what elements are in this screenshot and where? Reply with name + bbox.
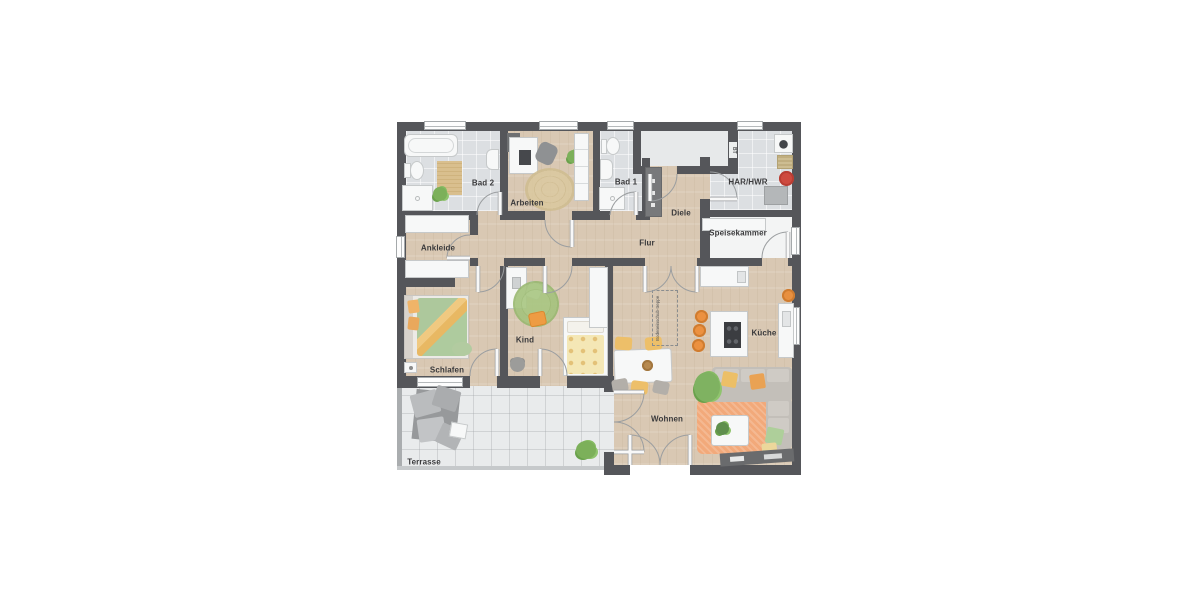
- plant-icon: [716, 422, 729, 435]
- room-label-har-hwr: HAR/HWR: [728, 178, 767, 187]
- entrance-porch-floor: [641, 131, 728, 166]
- counter-sink: [737, 271, 746, 283]
- room-label-ankleide: Ankleide: [421, 244, 455, 253]
- kitchen-counter: [700, 266, 749, 287]
- wall: [504, 258, 545, 266]
- tv-device: [764, 453, 782, 459]
- bed-blanket: [567, 335, 604, 374]
- room-label-kueche: Küche: [752, 329, 777, 338]
- washing-machine: [774, 134, 793, 153]
- wardrobe: [405, 260, 469, 278]
- coat-rack: [645, 167, 662, 217]
- shower: [599, 187, 625, 210]
- bathtub-basin: [408, 138, 454, 153]
- table-centerpiece: [642, 360, 653, 371]
- room-label-diele: Diele: [671, 209, 691, 218]
- small-rug: [452, 342, 472, 356]
- bathtub: [404, 134, 458, 157]
- sink: [486, 149, 499, 170]
- robot-vacuum: [779, 171, 794, 186]
- desk: [509, 137, 538, 174]
- wall: [572, 211, 610, 220]
- shower-drain: [415, 196, 420, 201]
- room-label-bad2: Bad 2: [472, 179, 494, 188]
- window: [424, 121, 466, 130]
- bt-annotation: BT: [729, 142, 737, 158]
- terrace-bottom-edge: [397, 466, 614, 470]
- floor-plan: Bodeneinschub-treppe BT: [0, 0, 1200, 600]
- window: [396, 236, 405, 258]
- wall: [470, 258, 478, 266]
- wall: [633, 131, 641, 166]
- wall: [500, 211, 545, 220]
- laptop: [519, 150, 531, 165]
- serving-tray: [449, 422, 468, 440]
- wall: [572, 258, 645, 266]
- fruit-bowl: [782, 289, 795, 302]
- room-label-flur: Flur: [639, 239, 655, 248]
- pillow: [407, 299, 420, 313]
- room-label-arbeiten: Arbeiten: [510, 199, 543, 208]
- attic-ladder-annotation: Bodeneinschub-treppe: [652, 290, 678, 346]
- bar-stool: [692, 339, 705, 352]
- room-label-terrasse: Terrasse: [407, 458, 441, 467]
- terrace-left-edge: [397, 386, 402, 468]
- plant-icon: [433, 187, 447, 201]
- nightstand-knob: [409, 366, 413, 370]
- tv-device: [730, 456, 744, 462]
- room-label-schlafen: Schlafen: [430, 366, 464, 375]
- window: [791, 227, 800, 255]
- window: [539, 121, 578, 130]
- nightstand: [404, 362, 417, 373]
- room-label-speisekammer: Speisekammer: [709, 229, 767, 238]
- bar-stool: [693, 324, 706, 337]
- room-label-kind: Kind: [516, 336, 534, 345]
- sofa-cushion: [768, 401, 789, 416]
- wall: [690, 465, 801, 475]
- pillow: [749, 373, 766, 390]
- shelf: [574, 133, 589, 201]
- hanger-dots: [651, 173, 655, 207]
- wall: [700, 157, 710, 172]
- wardrobe: [405, 215, 469, 233]
- room-label-wohnen: Wohnen: [651, 415, 683, 424]
- laundry-basket: [777, 155, 793, 169]
- room-label-bad1: Bad 1: [615, 178, 637, 187]
- toilet-bowl: [410, 161, 424, 180]
- dining-chair: [615, 336, 633, 350]
- toilet-bowl: [606, 137, 620, 155]
- bar-stool: [695, 310, 708, 323]
- dining-chair: [630, 380, 648, 395]
- sofa-cushion: [767, 369, 789, 382]
- pillow: [721, 371, 738, 388]
- coffee-table: [711, 415, 749, 446]
- shower: [402, 185, 433, 211]
- wall: [397, 278, 455, 287]
- wall: [497, 376, 540, 388]
- teddy-bear: [510, 357, 525, 372]
- kitchen-counter: [778, 303, 794, 358]
- counter-sink: [782, 311, 791, 327]
- freezer: [764, 186, 788, 205]
- wall: [470, 211, 478, 235]
- pillow: [407, 316, 419, 330]
- wardrobe: [589, 267, 608, 328]
- wall: [700, 210, 801, 217]
- sink: [600, 159, 613, 180]
- wall: [697, 258, 762, 266]
- plant-icon: [694, 372, 720, 402]
- window: [607, 121, 634, 130]
- wall: [788, 258, 801, 266]
- shower-drain: [610, 196, 615, 201]
- window: [737, 121, 763, 130]
- wall: [604, 465, 630, 475]
- kitchen-island: [710, 311, 748, 357]
- cooktop: [724, 322, 741, 348]
- plant-icon: [576, 441, 596, 459]
- dining-chair: [611, 378, 629, 394]
